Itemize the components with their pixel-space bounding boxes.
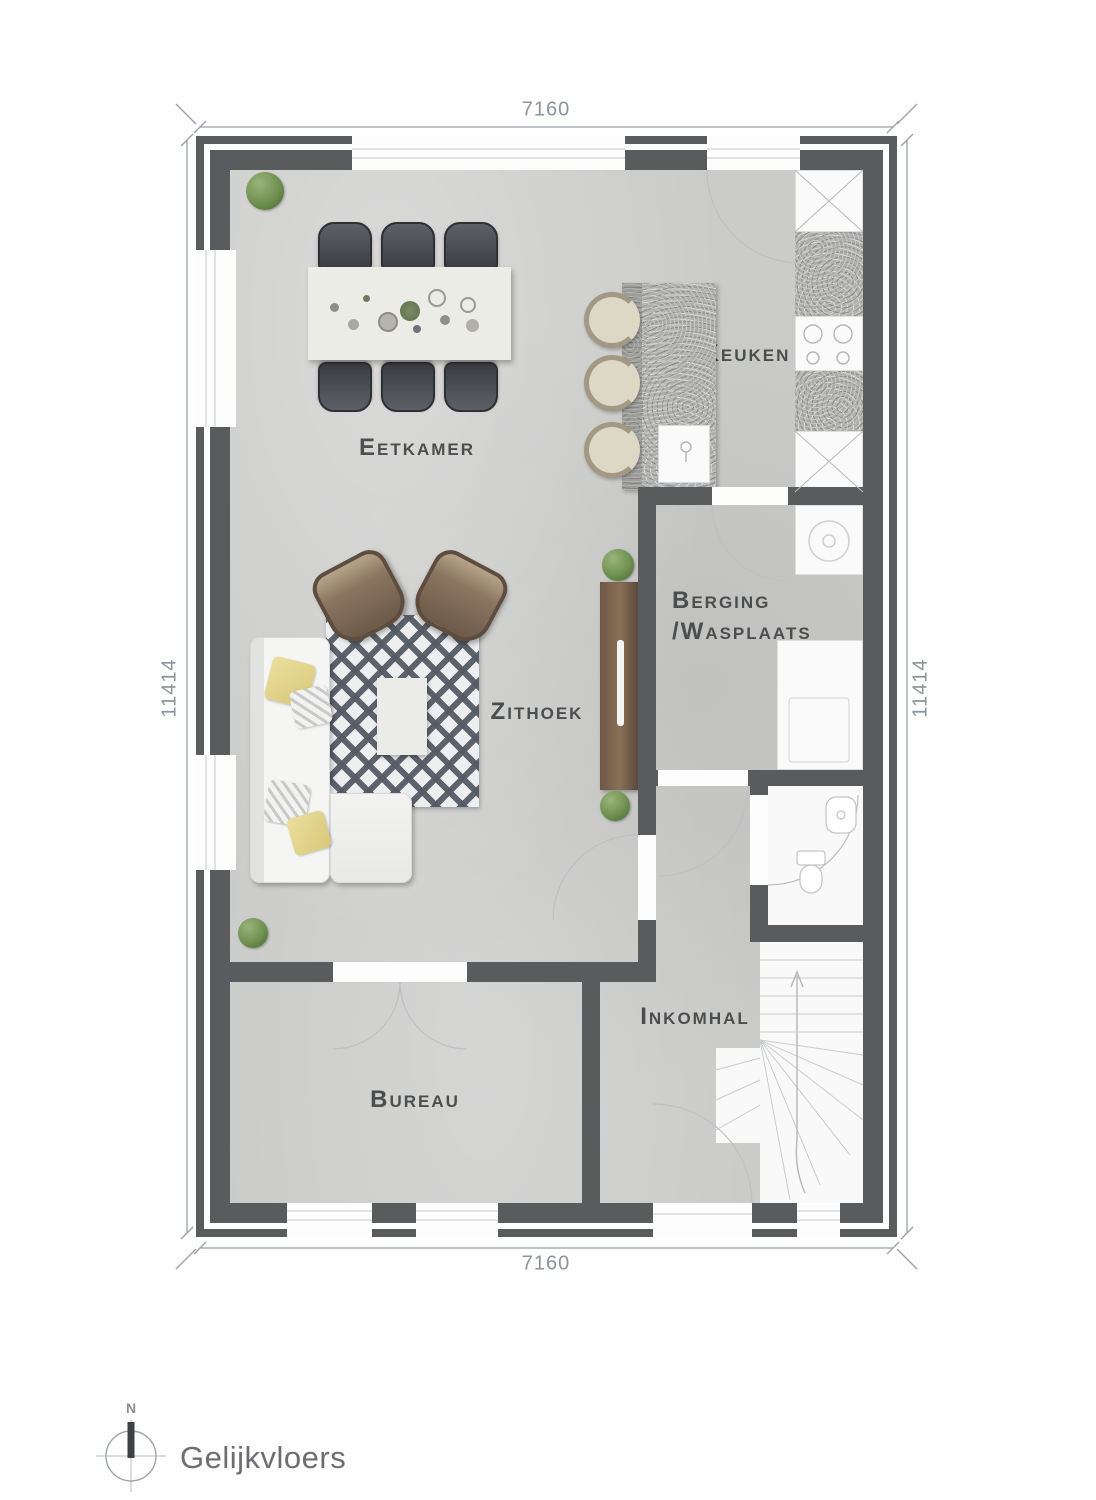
dining-chair [381, 222, 435, 272]
berging-counter [777, 640, 863, 770]
table-decor-dot [466, 319, 479, 332]
staircase-landing-notch [716, 1048, 760, 1143]
wc-floor [768, 786, 863, 925]
plant [246, 172, 284, 210]
table-decor-dot [363, 295, 370, 302]
table-decor-dot [413, 325, 421, 333]
island-sink [658, 425, 710, 483]
kitchen-worktop [795, 232, 863, 316]
window-top-eetkamer [352, 136, 625, 170]
dining-chair [381, 362, 435, 412]
dining-chair [444, 222, 498, 272]
kitchen-cabinet [795, 431, 863, 492]
wall-bureau-inkomhal [582, 982, 600, 1203]
dining-chair [318, 362, 372, 412]
kitchen-worktop [795, 371, 863, 431]
bar-stool [584, 292, 640, 348]
room-label-zithoek: Zithoek [491, 698, 584, 726]
plant [600, 791, 630, 821]
door-opening-bureau [333, 962, 467, 982]
dimension-top: 7160 [522, 99, 571, 122]
wall-wc-stairs [750, 925, 883, 942]
window-bottom-bureau-2 [416, 1203, 498, 1237]
compass-icon [96, 1420, 166, 1492]
table-decor-dot [348, 319, 359, 330]
table-decor-dot [428, 289, 446, 307]
dimension-bottom: 7160 [522, 1253, 571, 1276]
front-door-opening [653, 1203, 752, 1237]
window-bottom-stairs [797, 1203, 840, 1237]
table-decor-dot [460, 297, 476, 313]
bar-stool [584, 355, 640, 411]
room-label-berging: Berging /Wasplaats [672, 585, 812, 647]
table-decor-dot [440, 315, 450, 325]
door-opening-wc [750, 795, 768, 885]
window-left-zithoek [196, 755, 236, 870]
room-label-bureau: Bureau [370, 1086, 460, 1114]
sofa-chaise [330, 793, 412, 883]
kitchen-counter [795, 170, 863, 492]
room-label-inkomhal: Inkomhal [640, 1003, 750, 1031]
washing-machine [795, 505, 863, 575]
floorplan-canvas: Eetkamer Keuken Berging /Wasplaats Zitho… [0, 0, 1096, 1500]
floor-title: Gelijkvloers [180, 1440, 346, 1476]
dimension-right: 11414 [910, 658, 933, 717]
plant [238, 918, 268, 948]
table-decor-dot [378, 312, 398, 332]
dining-chair [444, 362, 498, 412]
cooktop [795, 316, 863, 371]
plant [602, 549, 634, 581]
window-top-keuken [707, 136, 800, 170]
dimension-left: 11414 [159, 658, 182, 717]
compass-north-label: N [126, 1400, 136, 1416]
door-opening-zithoek-inkomhal [638, 835, 656, 920]
sofa-pillow [288, 684, 333, 729]
window-left-eetkamer [196, 250, 236, 427]
room-label-berging-line1: Berging [672, 585, 812, 616]
dining-chair [318, 222, 372, 272]
tv [617, 640, 624, 726]
kitchen-cabinet [795, 170, 863, 232]
dining-table [308, 267, 511, 360]
bar-stool [584, 422, 640, 478]
coffee-table [377, 678, 427, 755]
table-decor-dot [330, 303, 339, 312]
table-decor-centerpiece [400, 301, 420, 321]
door-opening-berging-hall [658, 770, 748, 786]
door-opening-keuken-berging [712, 487, 788, 505]
window-bottom-bureau-1 [287, 1203, 372, 1237]
room-label-eetkamer: Eetkamer [359, 434, 475, 462]
staircase [760, 942, 863, 1203]
